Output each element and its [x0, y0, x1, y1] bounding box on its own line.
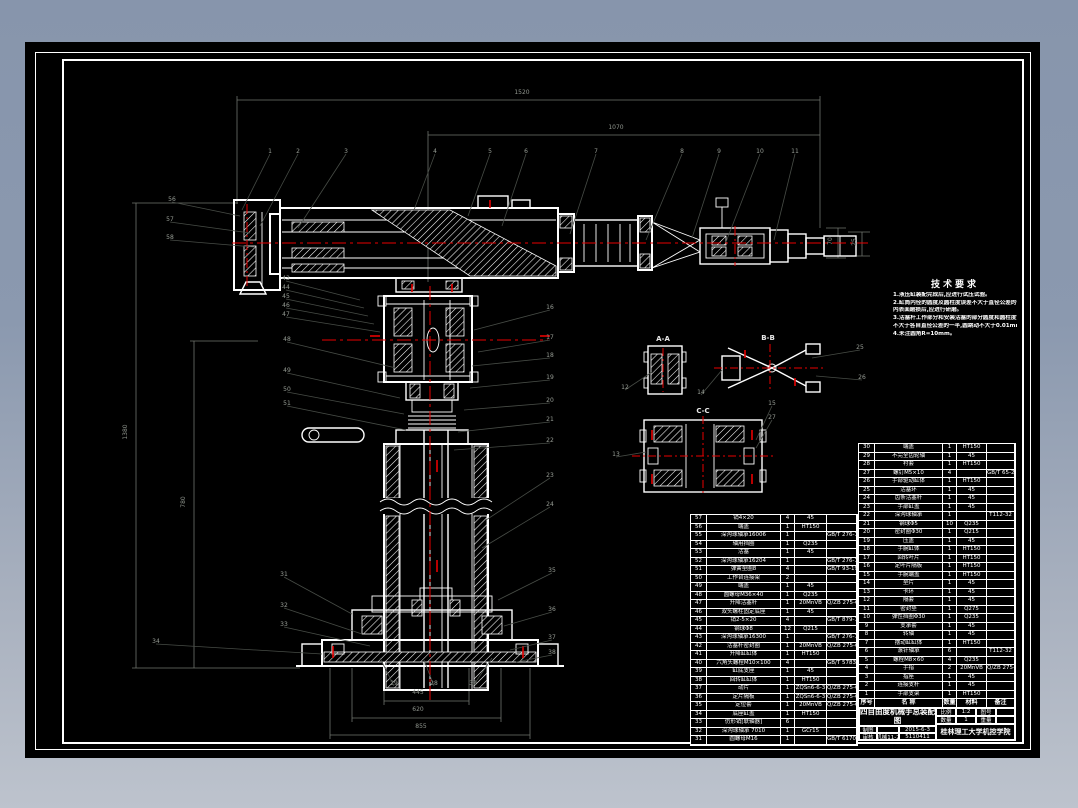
weight-value [996, 716, 1015, 724]
table-cell: Q235 [795, 541, 827, 550]
table-cell [827, 626, 857, 635]
part-balloon-27: 27 [768, 415, 776, 421]
part-balloon-7: 7 [594, 149, 598, 155]
table-cell: Q/ZB 275-62 [827, 600, 857, 609]
dimension-label: 1520 [514, 90, 529, 96]
table-cell: 1 [943, 597, 957, 606]
table-cell: HT150 [957, 444, 987, 453]
table-cell: 12 [859, 597, 875, 606]
table-cell: 活塞杆密封圈 [707, 643, 781, 652]
table-cell: 手部驱动缸体 [875, 478, 943, 487]
table-cell: Q/ZB 275-62 [827, 702, 857, 711]
part-balloon-22: 22 [546, 438, 554, 444]
table-cell: 1 [781, 558, 795, 567]
table-cell: 1 [943, 504, 957, 513]
part-balloon-14: 14 [697, 390, 705, 396]
tech-req-title: 技术要求 [893, 277, 1017, 290]
table-cell: 螺栓M8×60 [875, 657, 943, 666]
table-cell: 定片隔板 [707, 694, 781, 703]
part-balloon-28: 28 [430, 681, 438, 687]
part-balloon-57: 57 [166, 217, 174, 223]
table-cell: 45 [957, 589, 987, 598]
part-balloon-36: 36 [548, 607, 556, 613]
table-cell: 4 [943, 657, 957, 666]
parts-table-continuation: 57销4×2044556端盖1HT15055深沟球轴承160061GB/T 27… [690, 514, 858, 746]
table-cell: 40 [691, 660, 707, 669]
table-cell: 56 [691, 524, 707, 533]
table-cell: Q/ZB 275-62 [827, 643, 857, 652]
scale-label: 比例 [936, 708, 956, 716]
table-cell: 回转缸缸体 [707, 677, 781, 686]
part-balloon-56: 56 [168, 197, 176, 203]
table-cell: 密封圈Φ30 [875, 529, 943, 538]
section-label-b: B-B [761, 334, 775, 342]
table-cell: 连接支杆 [875, 682, 943, 691]
section-label-a: A-A [656, 335, 670, 343]
table-cell: 钢球Φ5 [875, 521, 943, 530]
table-cell: Q235 [957, 521, 987, 530]
table-cell: 45 [957, 580, 987, 589]
table-cell: Q/ZB 275-62 [987, 665, 1015, 674]
table-cell: 1 [943, 444, 957, 453]
table-cell [987, 589, 1015, 598]
tech-req-line: 3.活塞杆工作部分和安装活塞的部分圆度和圆柱度误差 [893, 315, 1017, 323]
table-cell: ZQSn6-6-3 [795, 685, 827, 694]
table-cell: 28 [859, 461, 875, 470]
table-cell [795, 660, 827, 669]
table-cell [795, 719, 827, 728]
part-balloon-34: 34 [152, 639, 160, 645]
table-cell: 45 [795, 549, 827, 558]
table-cell: 13 [859, 589, 875, 598]
table-cell: 54 [691, 541, 707, 550]
qty-value: 1 [956, 716, 976, 724]
title-block: 四自由度机械手总装配图 制图 2015-6-3 审核 机械11-2 511041… [858, 707, 1016, 741]
checker-class: 机械11-2 [877, 733, 899, 740]
table-cell: 3 [859, 674, 875, 683]
table-cell [827, 515, 857, 524]
table-cell: 1 [781, 532, 795, 541]
table-cell: 1 [943, 631, 957, 640]
table-cell [987, 546, 1015, 555]
table-cell: 1 [943, 453, 957, 462]
table-cell: HT150 [957, 478, 987, 487]
table-cell [795, 736, 827, 745]
table-cell [795, 634, 827, 643]
table-cell: 垫片 [875, 580, 943, 589]
table-cell: 1 [943, 495, 957, 504]
table-cell: 端盖 [707, 524, 781, 533]
table-cell: 51 [691, 566, 707, 575]
table-cell [957, 512, 987, 521]
table-cell: 摆动缸缸体 [875, 640, 943, 649]
part-balloon-23: 23 [546, 473, 554, 479]
tech-req-line: 2.缸筒内径的圆度及圆柱度误差不大于直径公差的一半, [893, 300, 1017, 308]
table-cell: 9 [859, 623, 875, 632]
table-cell: 1 [943, 623, 957, 632]
table-cell: 38 [691, 677, 707, 686]
table-cell: 手腕端盖 [875, 572, 943, 581]
part-balloon-47: 47 [282, 312, 290, 318]
table-cell [987, 606, 1015, 615]
table-cell: 41 [691, 651, 707, 660]
checker-label: 审核 [859, 733, 877, 740]
tech-req-line: 1.液压缸装配完成后,应进行试压试验。 [893, 292, 1017, 300]
horizontal-arm-section [234, 196, 856, 294]
table-cell: GB/T 6170-2000 [827, 736, 857, 745]
part-balloon-9: 9 [717, 149, 721, 155]
table-cell: 升降缸缸体 [707, 651, 781, 660]
drafter-name [877, 726, 899, 733]
dimension-label: 70 [828, 237, 834, 245]
table-cell: 滚针轴承 [875, 648, 943, 657]
dimension-label: 780 [181, 496, 187, 507]
table-cell: 圆螺母M36×40 [707, 592, 781, 601]
part-balloon-51: 51 [283, 401, 291, 407]
table-cell: T112-32 [987, 648, 1015, 657]
part-balloon-3: 3 [344, 149, 348, 155]
table-cell: 42 [691, 643, 707, 652]
table-cell: 1 [943, 589, 957, 598]
table-cell: 50 [691, 575, 707, 584]
table-cell: 1 [943, 478, 957, 487]
table-cell: 52 [691, 558, 707, 567]
table-cell: 1 [943, 572, 957, 581]
table-cell [987, 478, 1015, 487]
table-cell: GB/T 879-1994 [827, 617, 857, 626]
table-cell: 45 [795, 515, 827, 524]
qty-label: 数量 [936, 716, 956, 724]
drawing-title: 四自由度机械手总装配图 [859, 708, 936, 726]
table-cell: 20MnVB [795, 702, 827, 711]
part-balloon-2: 2 [296, 149, 300, 155]
table-cell: 1 [943, 563, 957, 572]
table-cell: Q235 [795, 592, 827, 601]
table-cell: 螺钉M5×10 [875, 470, 943, 479]
table-cell: 39 [691, 668, 707, 677]
table-cell: 4 [781, 660, 795, 669]
table-cell: 18 [859, 546, 875, 555]
table-cell: 45 [795, 609, 827, 618]
sheet-no-label: 图号 [976, 708, 996, 716]
part-balloon-11: 11 [791, 149, 799, 155]
table-cell: 4 [859, 665, 875, 674]
part-balloon-5: 5 [488, 149, 492, 155]
table-cell [827, 719, 857, 728]
tech-req-line: 不大于各自直径公差的一半,圆跳动不大于0.01mm。 [893, 323, 1017, 331]
part-balloon-46: 46 [282, 303, 290, 309]
table-cell: 4 [781, 566, 795, 575]
part-balloon-50: 50 [283, 387, 291, 393]
part-balloon-31: 31 [280, 572, 288, 578]
section-label-c: C-C [696, 407, 709, 415]
table-cell: 36 [691, 694, 707, 703]
table-cell: T112-32 [987, 512, 1015, 521]
table-cell: HT150 [957, 640, 987, 649]
part-balloon-33: 33 [280, 622, 288, 628]
table-cell [987, 572, 1015, 581]
table-cell: 24 [859, 495, 875, 504]
table-cell: 33 [691, 719, 707, 728]
table-cell: GCr15 [795, 728, 827, 737]
table-cell: 20 [859, 529, 875, 538]
table-cell [987, 504, 1015, 513]
table-cell: 六角头螺栓M10×100 [707, 660, 781, 669]
table-cell: 22 [859, 512, 875, 521]
table-cell: 定叶片隔板 [875, 563, 943, 572]
table-cell: 1 [943, 555, 957, 564]
table-cell: 卡环 [875, 589, 943, 598]
part-balloon-24: 24 [546, 502, 554, 508]
table-cell: 端盖 [875, 444, 943, 453]
table-cell: HT150 [795, 524, 827, 533]
table-cell: 45 [957, 453, 987, 462]
table-cell: 20MnVB [795, 643, 827, 652]
table-cell [795, 566, 827, 575]
table-cell: 45 [957, 538, 987, 547]
part-balloon-4: 4 [433, 149, 437, 155]
table-cell: 11 [859, 606, 875, 615]
table-cell: 手部缸盖 [875, 504, 943, 513]
table-cell: 缸底支座 [707, 668, 781, 677]
table-cell: 1 [943, 606, 957, 615]
table-cell [827, 711, 857, 720]
part-balloon-43: 43 [282, 276, 290, 282]
checker-number: 5110411 [899, 733, 936, 740]
table-cell: 活塞 [707, 549, 781, 558]
table-cell [987, 623, 1015, 632]
table-cell: 45 [795, 583, 827, 592]
table-cell: 1 [781, 702, 795, 711]
table-cell: 1 [781, 541, 795, 550]
table-cell: 1 [781, 549, 795, 558]
table-cell [957, 648, 987, 657]
table-cell: 1 [781, 711, 795, 720]
table-cell: 48 [691, 592, 707, 601]
table-cell: Q235 [957, 614, 987, 623]
table-cell: 深沟球轴承 7010 [707, 728, 781, 737]
table-cell: 44 [691, 626, 707, 635]
table-cell: 手腕缸体 [875, 546, 943, 555]
weight-label: 重量 [976, 716, 996, 724]
table-cell [827, 583, 857, 592]
table-cell: 1 [943, 640, 957, 649]
table-cell: 弹簧垫圈8 [707, 566, 781, 575]
table-cell: 弹性挡圈Φ30 [875, 614, 943, 623]
part-balloon-38: 38 [548, 650, 556, 656]
table-cell: Q235 [957, 657, 987, 666]
table-cell: ZQSn6-6-3 [795, 694, 827, 703]
table-cell: 1 [781, 600, 795, 609]
table-cell [827, 728, 857, 737]
part-balloon-15: 15 [768, 401, 776, 407]
table-cell: 1 [943, 538, 957, 547]
table-cell: 深沟球轴承16204 [707, 558, 781, 567]
drawing-date: 2015-6-3 [899, 726, 936, 733]
table-cell: 不完全齿轮轴 [875, 453, 943, 462]
table-cell: 46 [691, 609, 707, 618]
table-cell: HT150 [795, 651, 827, 660]
table-cell [827, 549, 857, 558]
table-cell: HT150 [795, 677, 827, 686]
table-cell: 12 [781, 626, 795, 635]
table-cell: 34 [691, 711, 707, 720]
scale-value: 1:2 [956, 708, 976, 716]
sheet-no-value [996, 708, 1015, 716]
table-cell [987, 444, 1015, 453]
table-cell: 4 [781, 617, 795, 626]
table-cell: 16 [859, 563, 875, 572]
table-cell: 深沟球轴承16006 [707, 532, 781, 541]
table-cell: 1 [781, 643, 795, 652]
part-balloon-19: 19 [546, 375, 554, 381]
part-balloon-6: 6 [524, 149, 528, 155]
table-cell: 1 [781, 677, 795, 686]
table-cell: 1 [943, 546, 957, 555]
table-cell: 2 [781, 575, 795, 584]
table-cell: Q275 [957, 606, 987, 615]
dimension-label: 855 [415, 724, 426, 730]
table-cell: 45 [957, 682, 987, 691]
tech-req-line: 内表面磨损后,应进行研磨。 [893, 307, 1017, 315]
table-cell [795, 558, 827, 567]
table-cell [795, 532, 827, 541]
table-cell [987, 453, 1015, 462]
table-cell: 回转叶片 [875, 555, 943, 564]
table-cell [987, 674, 1015, 683]
table-cell: 销2-5×20 [707, 617, 781, 626]
table-cell [987, 580, 1015, 589]
table-cell: GB/T 276-1994 [827, 558, 857, 567]
table-cell: 19 [859, 538, 875, 547]
table-cell: HT150 [957, 555, 987, 564]
table-cell [987, 614, 1015, 623]
table-cell: 35 [691, 702, 707, 711]
table-cell: 45 [957, 631, 987, 640]
table-cell: 端盖 [707, 583, 781, 592]
table-cell: 1 [781, 583, 795, 592]
table-cell: Q/ZB 275-62 [827, 694, 857, 703]
table-cell: 齿条活塞杆 [875, 495, 943, 504]
technical-requirements: 技术要求 1.液压缸装配完成后,应进行试压试验。 2.缸筒内径的圆度及圆柱度误差… [893, 277, 1017, 338]
table-cell [987, 657, 1015, 666]
part-balloon-48: 48 [283, 337, 291, 343]
table-cell: 25 [859, 487, 875, 496]
table-cell [957, 470, 987, 479]
table-cell: 27 [859, 470, 875, 479]
table-cell: 深沟球轴承 [875, 512, 943, 521]
table-cell [987, 631, 1015, 640]
table-cell: 1 [781, 634, 795, 643]
table-cell: 支承套 [875, 623, 943, 632]
table-cell: 深沟球轴承16300 [707, 634, 781, 643]
detail-view-a [644, 346, 686, 394]
part-balloon-1: 1 [268, 149, 272, 155]
table-cell: 升降活塞杆 [707, 600, 781, 609]
table-cell: 1 [781, 651, 795, 660]
table-cell: 45 [691, 617, 707, 626]
table-cell: 45 [957, 674, 987, 683]
table-cell: GB/T 276-1994 [827, 634, 857, 643]
table-cell: 6 [943, 648, 957, 657]
table-cell: 1 [781, 524, 795, 533]
cad-viewport: 技术要求 1.液压缸装配完成后,应进行试压试验。 2.缸筒内径的圆度及圆柱度误差… [0, 0, 1078, 808]
table-cell [987, 538, 1015, 547]
table-cell: 定位套 [707, 702, 781, 711]
table-cell: 1 [781, 694, 795, 703]
table-cell: 压盖 [875, 538, 943, 547]
table-cell: 45 [957, 504, 987, 513]
table-cell: 57 [691, 515, 707, 524]
table-cell: 4 [781, 515, 795, 524]
table-cell: 20MnVB [957, 665, 987, 674]
table-cell: 43 [691, 634, 707, 643]
table-cell: HT150 [795, 711, 827, 720]
table-cell: 隔套 [875, 597, 943, 606]
table-cell: 4 [943, 470, 957, 479]
table-cell: 6 [781, 719, 795, 728]
dimension-label: 620 [412, 707, 423, 713]
table-cell: GB/T 65-2000 [987, 470, 1015, 479]
part-balloon-49: 49 [283, 368, 291, 374]
table-cell: 衬套 [875, 461, 943, 470]
table-cell: 1 [781, 668, 795, 677]
organization-name: 桂林理工大学机控学院 [936, 724, 1015, 740]
table-cell [987, 529, 1015, 538]
table-cell [987, 682, 1015, 691]
tech-req-line: 4.未注圆角R=10mm。 [893, 331, 1017, 339]
table-cell [987, 487, 1015, 496]
table-cell [827, 575, 857, 584]
table-cell: 指座 [875, 674, 943, 683]
table-cell: 2 [859, 682, 875, 691]
table-cell: 1 [943, 529, 957, 538]
part-balloon-37: 37 [548, 635, 556, 641]
part-balloon-44: 44 [282, 285, 290, 291]
table-cell: 17 [859, 555, 875, 564]
table-cell: 1 [943, 614, 957, 623]
table-cell: 1 [781, 592, 795, 601]
part-balloon-26: 26 [858, 375, 866, 381]
table-cell: 55 [691, 532, 707, 541]
table-cell [987, 597, 1015, 606]
part-balloon-35: 35 [548, 568, 556, 574]
table-cell: HT150 [957, 461, 987, 470]
part-balloon-13: 13 [612, 452, 620, 458]
table-cell [827, 609, 857, 618]
table-cell: 5 [859, 657, 875, 666]
table-cell [827, 524, 857, 533]
part-balloon-12: 12 [621, 385, 629, 391]
table-cell: 20MnVB [795, 600, 827, 609]
table-cell: 47 [691, 600, 707, 609]
table-cell [827, 541, 857, 550]
table-cell: 15 [859, 572, 875, 581]
table-cell [987, 563, 1015, 572]
part-balloon-30: 30 [469, 681, 477, 687]
dimension-label: 25 [852, 238, 858, 246]
dimension-label: 1070 [608, 125, 623, 131]
table-cell: 圆螺母M16 [707, 736, 781, 745]
part-balloon-58: 58 [166, 235, 174, 241]
table-cell: Q215 [795, 626, 827, 635]
table-cell: 53 [691, 549, 707, 558]
table-cell: 活塞环 [875, 487, 943, 496]
table-cell: 10 [943, 521, 957, 530]
part-balloon-20: 20 [546, 398, 554, 404]
dimension-label: 445 [412, 690, 423, 696]
table-cell: 工作台连接架 [707, 575, 781, 584]
